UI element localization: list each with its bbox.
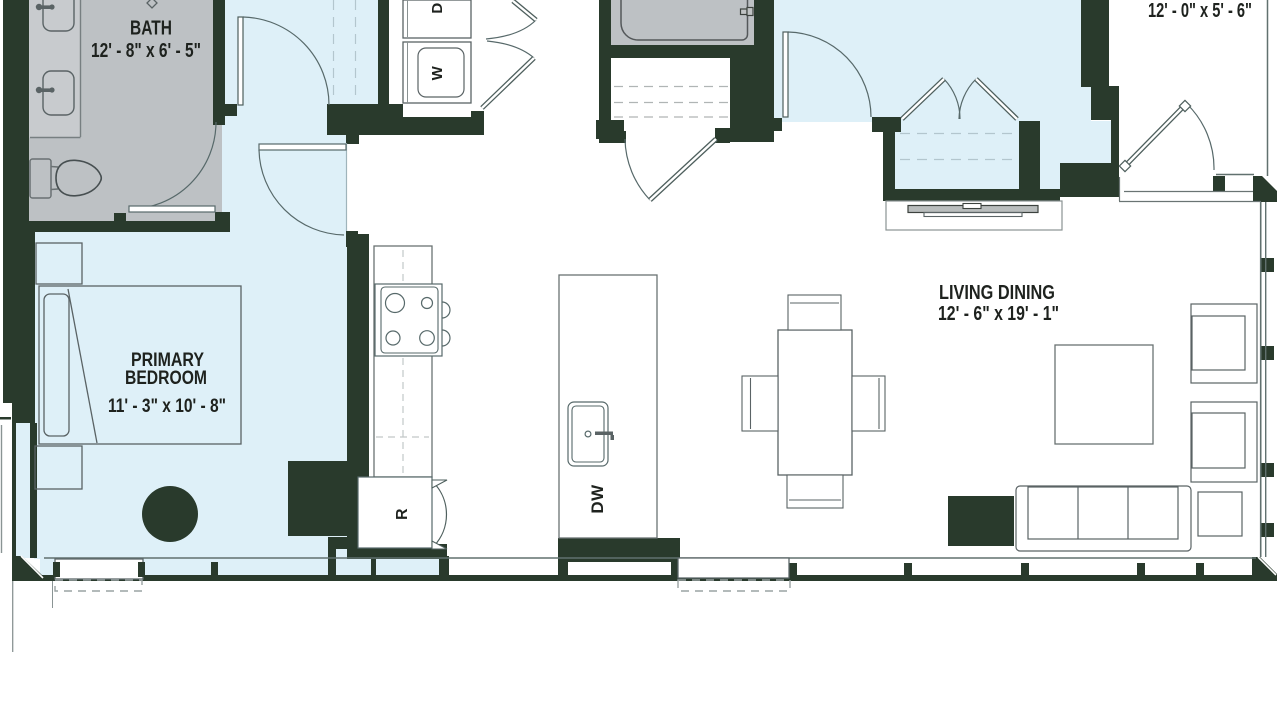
svg-text:12' - 0" x 5' - 6": 12' - 0" x 5' - 6" — [1148, 0, 1252, 22]
svg-text:LIVING DINING: LIVING DINING — [939, 281, 1055, 304]
svg-text:12' - 6" x 19' - 1": 12' - 6" x 19' - 1" — [938, 303, 1059, 325]
svg-text:11' - 3" x 10' - 8": 11' - 3" x 10' - 8" — [108, 396, 226, 417]
svg-text:12' - 8" x 6' - 5": 12' - 8" x 6' - 5" — [91, 40, 201, 62]
svg-text:W: W — [429, 65, 446, 80]
svg-text:BATH: BATH — [130, 17, 172, 40]
svg-text:BEDROOM: BEDROOM — [125, 367, 207, 389]
svg-text:DW: DW — [588, 484, 607, 514]
svg-text:D: D — [429, 2, 446, 13]
svg-text:R: R — [394, 508, 411, 520]
